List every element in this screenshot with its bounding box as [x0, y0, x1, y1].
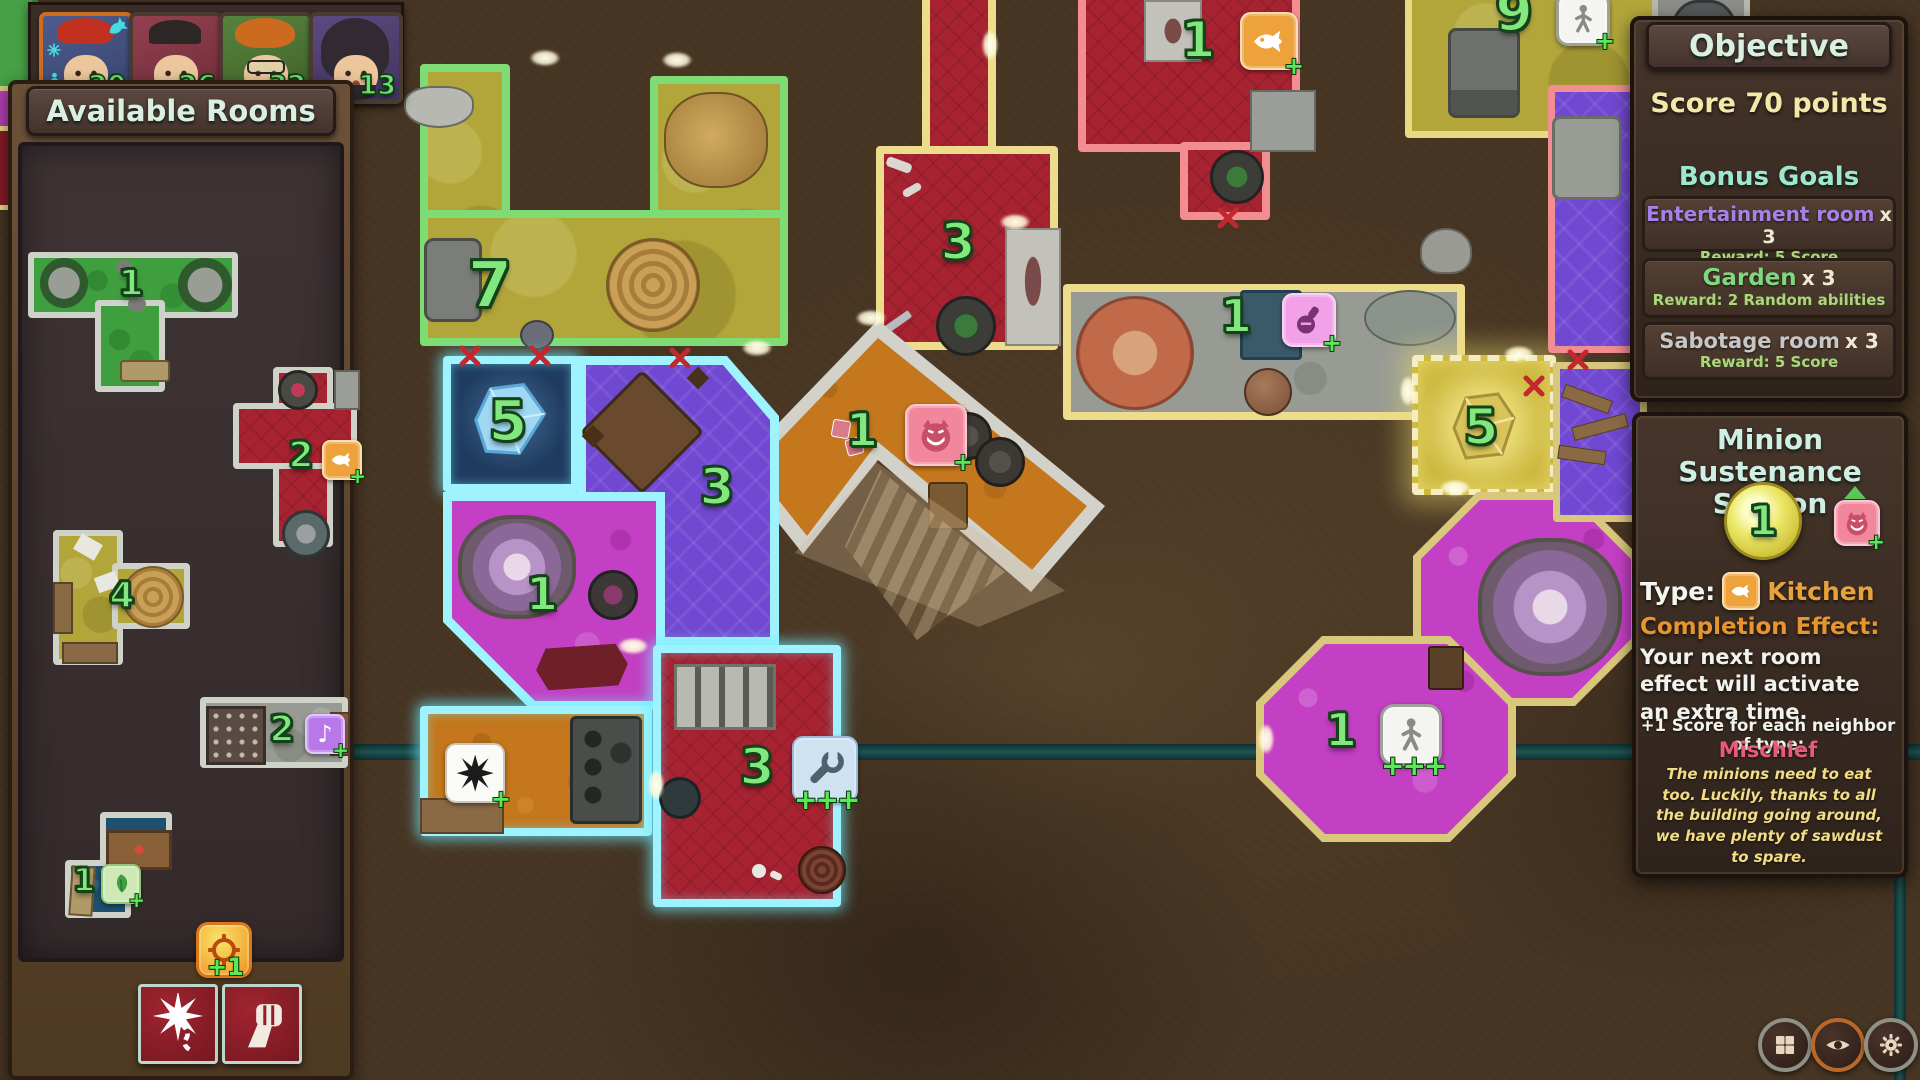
entertainment-chip: ♪ +: [305, 714, 345, 754]
goal-reward: Reward: 5 Score: [1645, 353, 1893, 371]
eye-view-button[interactable]: [1811, 1018, 1865, 1072]
woodpile-decor: [1428, 646, 1464, 690]
dormitory-bonus: +++: [1381, 752, 1445, 780]
coffin-decor: [535, 643, 630, 691]
objective-header: Objective: [1646, 22, 1892, 70]
cauldron-decor: [936, 296, 996, 356]
goal-count: x 3: [1802, 266, 1836, 290]
flavor-text: The minions need to eat too. Luckily, th…: [1650, 764, 1888, 867]
door-decor: [334, 370, 360, 410]
player-score: 13: [358, 72, 396, 99]
barrel-decor: [798, 846, 846, 894]
ability-badge[interactable]: +1: [196, 922, 252, 978]
door-notch: [742, 340, 772, 356]
blocked-door-icon: [1566, 348, 1590, 376]
goal-reward: Reward: 2 Random abilities: [1645, 291, 1893, 309]
eye-icon: [1824, 1031, 1852, 1059]
barrel-decor: [975, 437, 1025, 487]
grid-icon: [1773, 1033, 1797, 1057]
stove-decor: [570, 716, 642, 824]
door-notch: [1000, 214, 1030, 230]
mischief-upgrade-arrow: [1844, 486, 1866, 499]
bomb-button[interactable]: [138, 984, 218, 1064]
fist-icon: [234, 996, 290, 1052]
potion-chip: +: [1282, 293, 1336, 347]
blocked-door-icon: [668, 346, 692, 374]
statue-decor: [40, 258, 88, 308]
snake-rug-decor: [606, 238, 700, 332]
statue-decor: [404, 86, 474, 128]
scarab-rug-decor: [664, 92, 768, 188]
slab-decor: [1005, 228, 1061, 346]
grid-view-button[interactable]: [1758, 1018, 1812, 1072]
completion-effect-label: Completion Effect:: [1640, 614, 1896, 640]
fish-icon: [1250, 22, 1289, 61]
door-notch: [1258, 724, 1274, 754]
music-icon: ♪: [317, 722, 332, 746]
room-info-title-line1: Minion Sustenance: [1640, 424, 1900, 488]
objective-title: Objective: [1689, 29, 1849, 64]
workshop-bonus: +++: [794, 786, 858, 814]
neighbor-bonus-type: Mischief: [1640, 738, 1896, 762]
garden-chip: +: [101, 864, 141, 904]
boar-statue-decor: [1420, 228, 1472, 274]
fist-button[interactable]: [222, 984, 302, 1064]
door-notch: [982, 30, 998, 60]
door-notch: [1440, 480, 1470, 496]
round-rug-decor: [1076, 296, 1194, 410]
oval-rug-decor: [1364, 290, 1456, 346]
bench-decor: [120, 360, 170, 382]
fish-icon: [1729, 579, 1753, 603]
kitchen-chip: +: [322, 440, 362, 480]
room-score-medal: 1: [1724, 482, 1802, 560]
sofa-decor: [1552, 116, 1622, 200]
drum-decor: [282, 510, 330, 558]
kitchen-chip: +: [1240, 12, 1298, 70]
ability-count: +1: [207, 955, 244, 979]
hair: [235, 18, 295, 48]
sabotage-chip: +: [445, 743, 505, 803]
completion-effect-text: Your next room effect will activate an e…: [1640, 644, 1892, 726]
stool-decor: [1244, 368, 1292, 416]
available-rooms-header: Available Rooms: [26, 86, 336, 136]
bonus-goals-title: Bonus Goals: [1640, 162, 1898, 192]
spikeball-decor: [662, 780, 698, 816]
blocked-door-icon: [1216, 206, 1240, 234]
game-screen: 7 3 1 +: [0, 0, 1920, 1080]
door-notch: [530, 50, 560, 66]
bed-decor: [674, 664, 776, 730]
snowflake-icon: [46, 42, 62, 58]
geode-decor: [1478, 538, 1622, 676]
type-label: Type:: [1640, 577, 1715, 606]
blocked-door-icon: [528, 344, 552, 372]
bonus-goal-garden: Garden x 3 Reward: 2 Random abilities: [1642, 258, 1896, 318]
blocked-door-icon: [1522, 374, 1546, 402]
type-value: Kitchen: [1767, 577, 1874, 606]
minion-chip: +: [1556, 0, 1610, 46]
devil-icon: [915, 414, 957, 456]
geode-decor: [458, 515, 576, 619]
door-notch: [856, 310, 886, 326]
bonus-goal-entertainment: Entertainment room x 3 Reward: 5 Score: [1642, 196, 1896, 252]
statue-decor: [178, 258, 232, 312]
cauldron-decor: [588, 570, 638, 620]
door-notch: [1504, 346, 1534, 362]
mischief-chip: +: [905, 404, 967, 466]
goal-name: Garden: [1702, 265, 1796, 291]
mosaic-rug-decor: [206, 706, 266, 765]
cauldron-decor: [1210, 150, 1264, 204]
kitchen-chip: [1722, 572, 1760, 610]
door-notch: [662, 52, 692, 68]
door-notch: [648, 770, 664, 800]
gear-icon: [1878, 1032, 1904, 1058]
bench-decor: [62, 642, 118, 664]
door-notch: [1400, 376, 1416, 406]
door-notch: [618, 638, 648, 654]
hair: [149, 20, 201, 44]
skull-decor: [752, 864, 766, 878]
available-rooms-title: Available Rooms: [46, 94, 315, 128]
goal-name: Entertainment room: [1646, 202, 1874, 226]
goal-count: x 3: [1845, 329, 1879, 353]
goal-name: Sabotage room: [1659, 329, 1840, 353]
mischief-chip: +: [1834, 500, 1880, 546]
burst-icon: [455, 753, 495, 793]
room-type-row: Type: Kitchen: [1640, 572, 1896, 610]
explosion-icon: [149, 993, 207, 1055]
objective-goal: Score 70 points: [1640, 88, 1898, 119]
mace-decor: [278, 370, 318, 410]
blocked-door-icon: [458, 344, 482, 372]
settings-button[interactable]: [1864, 1018, 1918, 1072]
bonus-goal-sabotage: Sabotage room x 3 Reward: 5 Score: [1642, 322, 1896, 380]
counter-decor: [1250, 90, 1316, 152]
bench-decor: [53, 582, 73, 634]
